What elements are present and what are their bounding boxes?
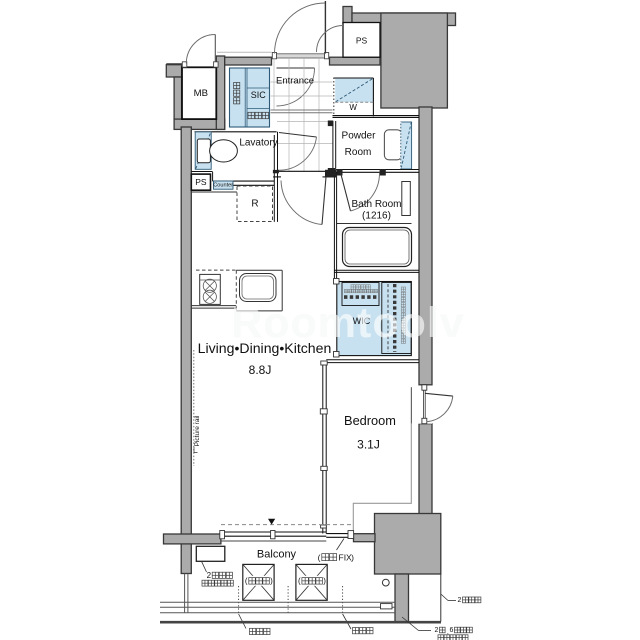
svg-text:Roomtoolv: Roomtoolv <box>231 299 465 347</box>
svg-text:SIC: SIC <box>251 90 267 100</box>
svg-text:): ) <box>323 577 326 586</box>
svg-text:Powder: Powder <box>342 131 377 142</box>
svg-text:2: 2 <box>458 597 462 604</box>
svg-text:(1216): (1216) <box>362 211 391 222</box>
svg-text:Bedroom: Bedroom <box>344 413 396 428</box>
svg-text:Lavatory: Lavatory <box>239 137 277 148</box>
svg-text:FIX: FIX <box>339 552 353 562</box>
svg-text:(: ( <box>318 552 321 562</box>
svg-text:W: W <box>349 103 357 112</box>
svg-text:Balcony: Balcony <box>257 548 297 560</box>
svg-text:PS: PS <box>195 177 207 187</box>
svg-text:(: ( <box>245 577 248 586</box>
svg-text:Room: Room <box>345 147 372 158</box>
svg-text:Bath Room: Bath Room <box>351 199 401 210</box>
svg-text:Picture rail: Picture rail <box>194 415 201 446</box>
svg-text:8.8J: 8.8J <box>249 363 272 377</box>
svg-text:): ) <box>270 577 273 586</box>
svg-text:R: R <box>251 199 258 210</box>
svg-text:(: ( <box>298 577 301 586</box>
svg-text:): ) <box>351 552 354 562</box>
svg-text:Entrance: Entrance <box>276 76 314 87</box>
svg-text:6: 6 <box>450 627 454 634</box>
svg-text:Counter: Counter <box>213 182 233 188</box>
svg-text:3.1J: 3.1J <box>357 438 380 452</box>
svg-text:MB: MB <box>194 88 208 99</box>
svg-text:PS: PS <box>356 36 368 46</box>
svg-text:2: 2 <box>435 627 439 634</box>
svg-text:2: 2 <box>207 571 212 580</box>
